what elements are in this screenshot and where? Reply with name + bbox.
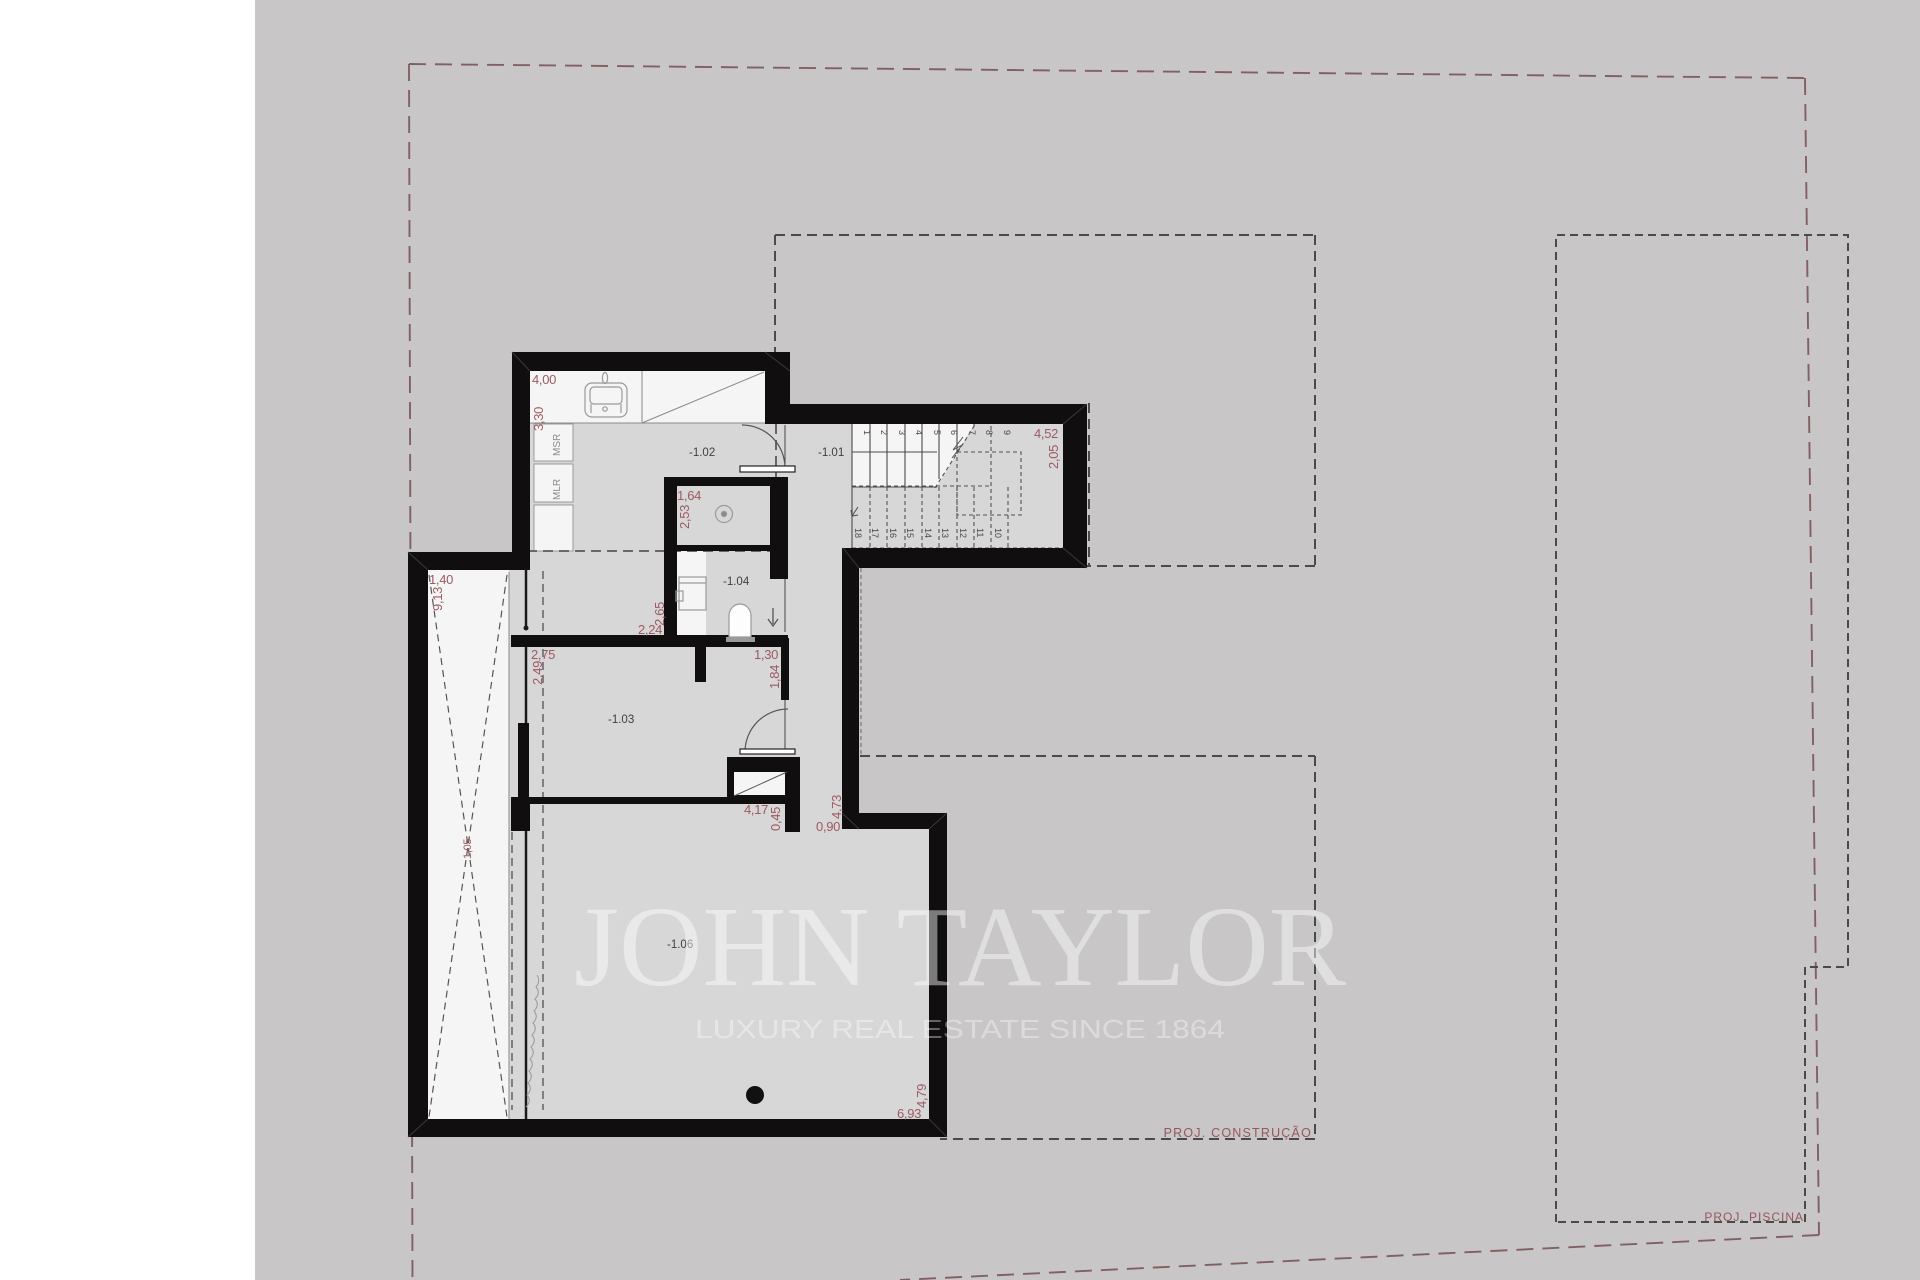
- svg-text:MLR: MLR: [552, 479, 563, 500]
- svg-text:11: 11: [975, 528, 985, 537]
- svg-text:9,13: 9,13: [430, 587, 445, 611]
- svg-text:4,17: 4,17: [744, 802, 768, 817]
- svg-text:13: 13: [940, 528, 950, 538]
- svg-text:5: 5: [932, 430, 942, 435]
- svg-text:16: 16: [888, 528, 898, 538]
- svg-text:JOHN TAYLOR: JOHN TAYLOR: [574, 883, 1346, 1010]
- svg-text:1: 1: [862, 430, 872, 435]
- svg-text:4,73: 4,73: [829, 795, 844, 819]
- svg-text:15: 15: [905, 528, 915, 538]
- svg-text:3: 3: [897, 430, 907, 435]
- svg-text:4,79: 4,79: [914, 1084, 929, 1108]
- svg-text:6: 6: [949, 430, 959, 435]
- svg-text:0,90: 0,90: [816, 819, 840, 834]
- svg-text:-1.03: -1.03: [608, 714, 634, 726]
- svg-text:3,30: 3,30: [531, 407, 546, 431]
- svg-text:-1.01: -1.01: [818, 447, 844, 459]
- svg-text:PROJ. PISCINA: PROJ. PISCINA: [1704, 1210, 1804, 1224]
- svg-text:4,52: 4,52: [1034, 426, 1058, 441]
- svg-text:2,05: 2,05: [1046, 445, 1061, 469]
- svg-text:2,53: 2,53: [677, 505, 692, 529]
- svg-text:1,30: 1,30: [754, 647, 778, 662]
- svg-text:4,00: 4,00: [532, 372, 556, 387]
- svg-text:1,64: 1,64: [677, 488, 701, 503]
- svg-text:LUXURY REAL ESTATE SINCE 1864: LUXURY REAL ESTATE SINCE 1864: [695, 1014, 1225, 1044]
- svg-text:14: 14: [923, 528, 933, 538]
- svg-text:8: 8: [984, 430, 994, 435]
- svg-text:1,84: 1,84: [767, 665, 782, 689]
- svg-text:18: 18: [853, 528, 863, 538]
- svg-text:2,24: 2,24: [638, 622, 662, 637]
- svg-text:2,49: 2,49: [530, 661, 545, 685]
- svg-text:9: 9: [1002, 430, 1012, 435]
- svg-text:PROJ. CONSTRUÇÃO: PROJ. CONSTRUÇÃO: [1164, 1126, 1312, 1140]
- svg-text:12: 12: [958, 528, 968, 538]
- svg-text:1,40: 1,40: [429, 572, 453, 587]
- svg-text:-1.02: -1.02: [689, 447, 715, 459]
- svg-text:17: 17: [870, 528, 880, 538]
- svg-text:2: 2: [879, 430, 889, 435]
- svg-text:4: 4: [914, 430, 924, 435]
- svg-text:-1.04: -1.04: [723, 576, 750, 588]
- svg-text:MSR: MSR: [552, 434, 563, 456]
- svg-text:0,45: 0,45: [768, 807, 783, 831]
- svg-text:10: 10: [993, 528, 1003, 538]
- svg-text:2,75: 2,75: [531, 647, 555, 662]
- svg-text:1,05: 1,05: [462, 839, 474, 859]
- svg-text:7: 7: [967, 430, 977, 435]
